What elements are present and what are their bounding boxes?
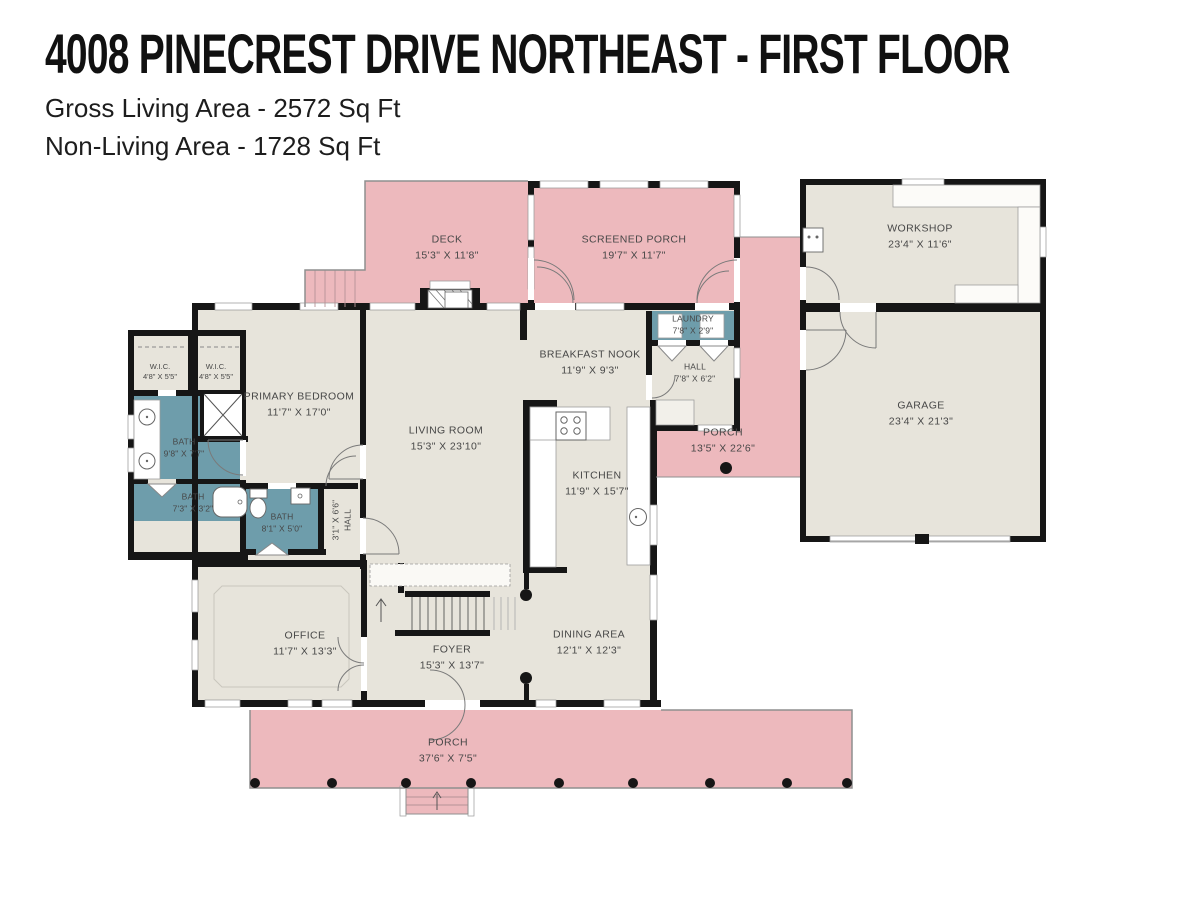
floor-plan-page: 4008 PINECREST DRIVE NORTHEAST - FIRST F… bbox=[0, 0, 1200, 900]
room-label-primary-bedroom: PRIMARY BEDROOM11'7" X 17'0" bbox=[244, 389, 355, 422]
toilet-tank bbox=[250, 489, 267, 498]
room-label-dining-area: DINING AREA12'1" X 12'3" bbox=[553, 627, 625, 660]
room-label-office: OFFICE11'7" X 13'3" bbox=[273, 628, 337, 661]
room-label-hall-small: 3'1" X 6'6"HALL bbox=[330, 500, 355, 541]
workshop-counter-top bbox=[893, 185, 1040, 207]
kitchen-sink bbox=[630, 509, 647, 526]
stove bbox=[556, 412, 586, 440]
front-porch-area bbox=[250, 710, 852, 788]
room-label-breakfast-nook: BREAKFAST NOOK11'9" X 9'3" bbox=[539, 347, 640, 380]
room-label-primary-bath: BATH9'8" X 7'7" bbox=[164, 436, 205, 461]
hall-closet bbox=[656, 400, 694, 425]
room-label-front-porch: PORCH37'6" X 7'5" bbox=[419, 735, 477, 768]
room-label-living-room: LIVING ROOM15'3" X 23'10" bbox=[409, 423, 483, 456]
room-label-wic-left: W.I.C.4'8" X 5'5" bbox=[143, 362, 177, 382]
room-label-deck: DECK15'3" X 11'8" bbox=[415, 232, 479, 265]
room-label-kitchen: KITCHEN11'9" X 15'7" bbox=[565, 468, 629, 501]
room-label-garage: GARAGE23'4" X 21'3" bbox=[889, 398, 954, 431]
front-door-opening bbox=[425, 700, 480, 707]
room-label-hall-rear: HALL7'8" X 6'2" bbox=[675, 361, 716, 386]
room-label-screened-porch: SCREENED PORCH19'7" X 11'7" bbox=[582, 232, 687, 265]
room-label-hall-bath: BATH8'1" X 5'0" bbox=[262, 511, 303, 536]
bath-sink-square bbox=[291, 488, 310, 504]
room-label-laundry: LAUNDRY7'8" X 2'9" bbox=[672, 313, 714, 338]
floor-plan: DECK15'3" X 11'8" SCREENED PORCH19'7" X … bbox=[0, 0, 1200, 900]
utility-sink bbox=[803, 228, 823, 252]
room-label-side-porch: PORCH13'5" X 22'6" bbox=[691, 425, 756, 458]
room-label-workshop: WORKSHOP23'4" X 11'6" bbox=[887, 221, 953, 254]
workshop-counter-right bbox=[1018, 207, 1040, 303]
kitchen-counter-right bbox=[627, 407, 650, 565]
workshop-counter-corner bbox=[955, 285, 1018, 303]
room-label-foyer: FOYER15'3" X 13'7" bbox=[420, 642, 485, 675]
hearth bbox=[430, 281, 470, 289]
room-label-tub-bath: BATH7'3" X 3'2" bbox=[173, 491, 214, 516]
stair-landing bbox=[370, 564, 510, 586]
room-label-wic-right: W.I.C.4'8" X 5'5" bbox=[199, 362, 233, 382]
